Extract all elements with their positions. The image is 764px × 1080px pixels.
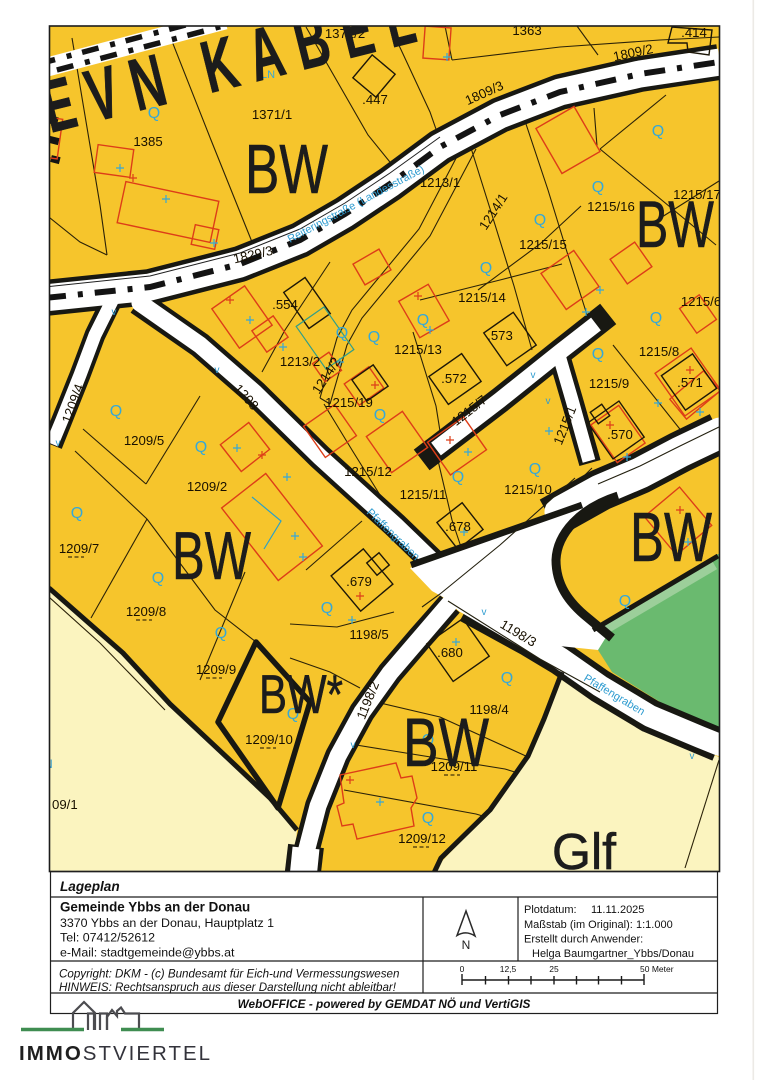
- svg-text:1209/7: 1209/7: [59, 541, 99, 556]
- svg-text:50 Meter: 50 Meter: [640, 964, 674, 974]
- svg-text:1209/8: 1209/8: [126, 604, 166, 619]
- svg-text:.571: .571: [677, 375, 703, 390]
- svg-text:1209/5: 1209/5: [124, 433, 164, 448]
- svg-text:.680: .680: [437, 645, 463, 660]
- svg-text:Q: Q: [422, 810, 434, 827]
- svg-text:09/1: 09/1: [52, 797, 78, 812]
- svg-text:1215/15: 1215/15: [519, 237, 567, 252]
- svg-text:.414: .414: [681, 25, 707, 40]
- svg-text:BW: BW: [245, 130, 328, 208]
- svg-text:1215/10: 1215/10: [504, 482, 552, 497]
- svg-text:Q: Q: [321, 600, 333, 617]
- svg-text:1213/1: 1213/1: [420, 175, 460, 190]
- svg-text:Q: Q: [417, 312, 429, 329]
- svg-text:BW: BW: [636, 187, 715, 261]
- svg-text:BW: BW: [172, 518, 251, 594]
- svg-text:v: v: [351, 740, 356, 751]
- svg-text:1215/16: 1215/16: [587, 199, 635, 214]
- svg-text:12,5: 12,5: [500, 964, 517, 974]
- svg-text:3370 Ybbs an der Donau, Hauptp: 3370 Ybbs an der Donau, Hauptplatz 1: [60, 916, 274, 930]
- svg-text:.554: .554: [272, 297, 298, 312]
- svg-text:e-Mail: stadtgemeinde@ybbs.at: e-Mail: stadtgemeinde@ybbs.at: [60, 946, 235, 960]
- svg-text:.572: .572: [441, 371, 467, 386]
- svg-text:1215/14: 1215/14: [458, 290, 506, 305]
- svg-text:1198/5: 1198/5: [349, 627, 388, 642]
- svg-text:1209/2: 1209/2: [187, 479, 227, 494]
- svg-text:Gemeinde Ybbs an der Donau: Gemeinde Ybbs an der Donau: [60, 900, 250, 915]
- svg-text:0: 0: [460, 964, 465, 974]
- svg-text:Q: Q: [195, 439, 207, 456]
- svg-text:Q: Q: [480, 260, 492, 277]
- svg-text:1209/10: 1209/10: [245, 732, 293, 747]
- svg-text:1215/6: 1215/6: [681, 294, 721, 309]
- svg-text:Q: Q: [152, 570, 164, 587]
- svg-text:WebOFFICE - powered by GEMDAT: WebOFFICE - powered by GEMDAT NÖ und Ver…: [238, 997, 531, 1011]
- svg-text:Q: Q: [652, 123, 664, 140]
- svg-text:1215/12: 1215/12: [344, 464, 392, 479]
- svg-text:Q: Q: [452, 469, 464, 486]
- svg-text:.447: .447: [362, 92, 388, 107]
- svg-text:1371/1: 1371/1: [252, 107, 292, 122]
- svg-text:BW*: BW*: [259, 663, 343, 725]
- svg-text:Q: Q: [374, 407, 386, 424]
- svg-text:1215/9: 1215/9: [589, 376, 629, 391]
- svg-text:.573: .573: [487, 328, 513, 343]
- svg-text:Plotdatum:: Plotdatum:: [524, 904, 577, 916]
- svg-text:25: 25: [549, 964, 559, 974]
- svg-text:Q: Q: [501, 670, 513, 687]
- svg-text:v: v: [531, 370, 536, 381]
- svg-text:.679: .679: [346, 574, 372, 589]
- svg-text:Q: Q: [592, 179, 604, 196]
- svg-text:Q: Q: [650, 310, 662, 327]
- svg-text:HINWEIS: Rechtsanspruch aus di: HINWEIS: Rechtsanspruch aus dieser Darst…: [59, 981, 397, 994]
- svg-text:Q: Q: [529, 461, 541, 478]
- svg-text:.570: .570: [607, 427, 633, 442]
- svg-text:Q: Q: [110, 403, 122, 420]
- svg-text:1215/8: 1215/8: [639, 344, 679, 359]
- svg-text:Lageplan: Lageplan: [60, 879, 120, 894]
- svg-text:Q: Q: [619, 593, 631, 610]
- svg-text:1215/19: 1215/19: [325, 395, 373, 410]
- svg-text:v: v: [56, 438, 61, 449]
- svg-text:1209/12: 1209/12: [398, 831, 446, 846]
- svg-text:BW: BW: [630, 498, 712, 576]
- svg-text:N: N: [44, 757, 53, 771]
- svg-text:1385: 1385: [133, 134, 162, 149]
- svg-text:Q: Q: [592, 346, 604, 363]
- svg-text:Q: Q: [534, 212, 546, 229]
- svg-text:N: N: [462, 938, 471, 952]
- svg-text:v: v: [215, 365, 220, 376]
- svg-text:v: v: [546, 396, 551, 407]
- svg-text:BW: BW: [403, 704, 489, 781]
- svg-text:v: v: [112, 307, 117, 318]
- svg-text:Q: Q: [215, 625, 227, 642]
- svg-text:Q: Q: [336, 325, 348, 342]
- svg-text:Erstellt durch Anwender:: Erstellt durch Anwender:: [524, 934, 643, 946]
- svg-text:Q: Q: [71, 505, 83, 522]
- svg-text:Tel: 07412/52612: Tel: 07412/52612: [60, 931, 155, 945]
- svg-text:.678: .678: [445, 519, 471, 534]
- svg-text:1213/2: 1213/2: [280, 354, 320, 369]
- svg-text:Copyright: DKM - (c) Bundesamt: Copyright: DKM - (c) Bundesamt für Eich-…: [59, 968, 399, 981]
- svg-text:v: v: [482, 607, 487, 618]
- svg-text:1:1.000: 1:1.000: [636, 919, 673, 931]
- svg-text:1209/9: 1209/9: [196, 662, 236, 677]
- svg-text:1215/13: 1215/13: [394, 342, 442, 357]
- svg-text:Q: Q: [368, 329, 380, 346]
- svg-text:1215/11: 1215/11: [400, 487, 447, 502]
- svg-text:IMMOSTVIERTEL: IMMOSTVIERTEL: [19, 1042, 212, 1065]
- svg-text:v: v: [690, 751, 695, 762]
- svg-text:Helga Baumgartner_Ybbs/Donau: Helga Baumgartner_Ybbs/Donau: [532, 948, 694, 960]
- svg-text:11.11.2025: 11.11.2025: [591, 904, 644, 916]
- svg-text:Maßstab (im Original):: Maßstab (im Original):: [524, 919, 633, 931]
